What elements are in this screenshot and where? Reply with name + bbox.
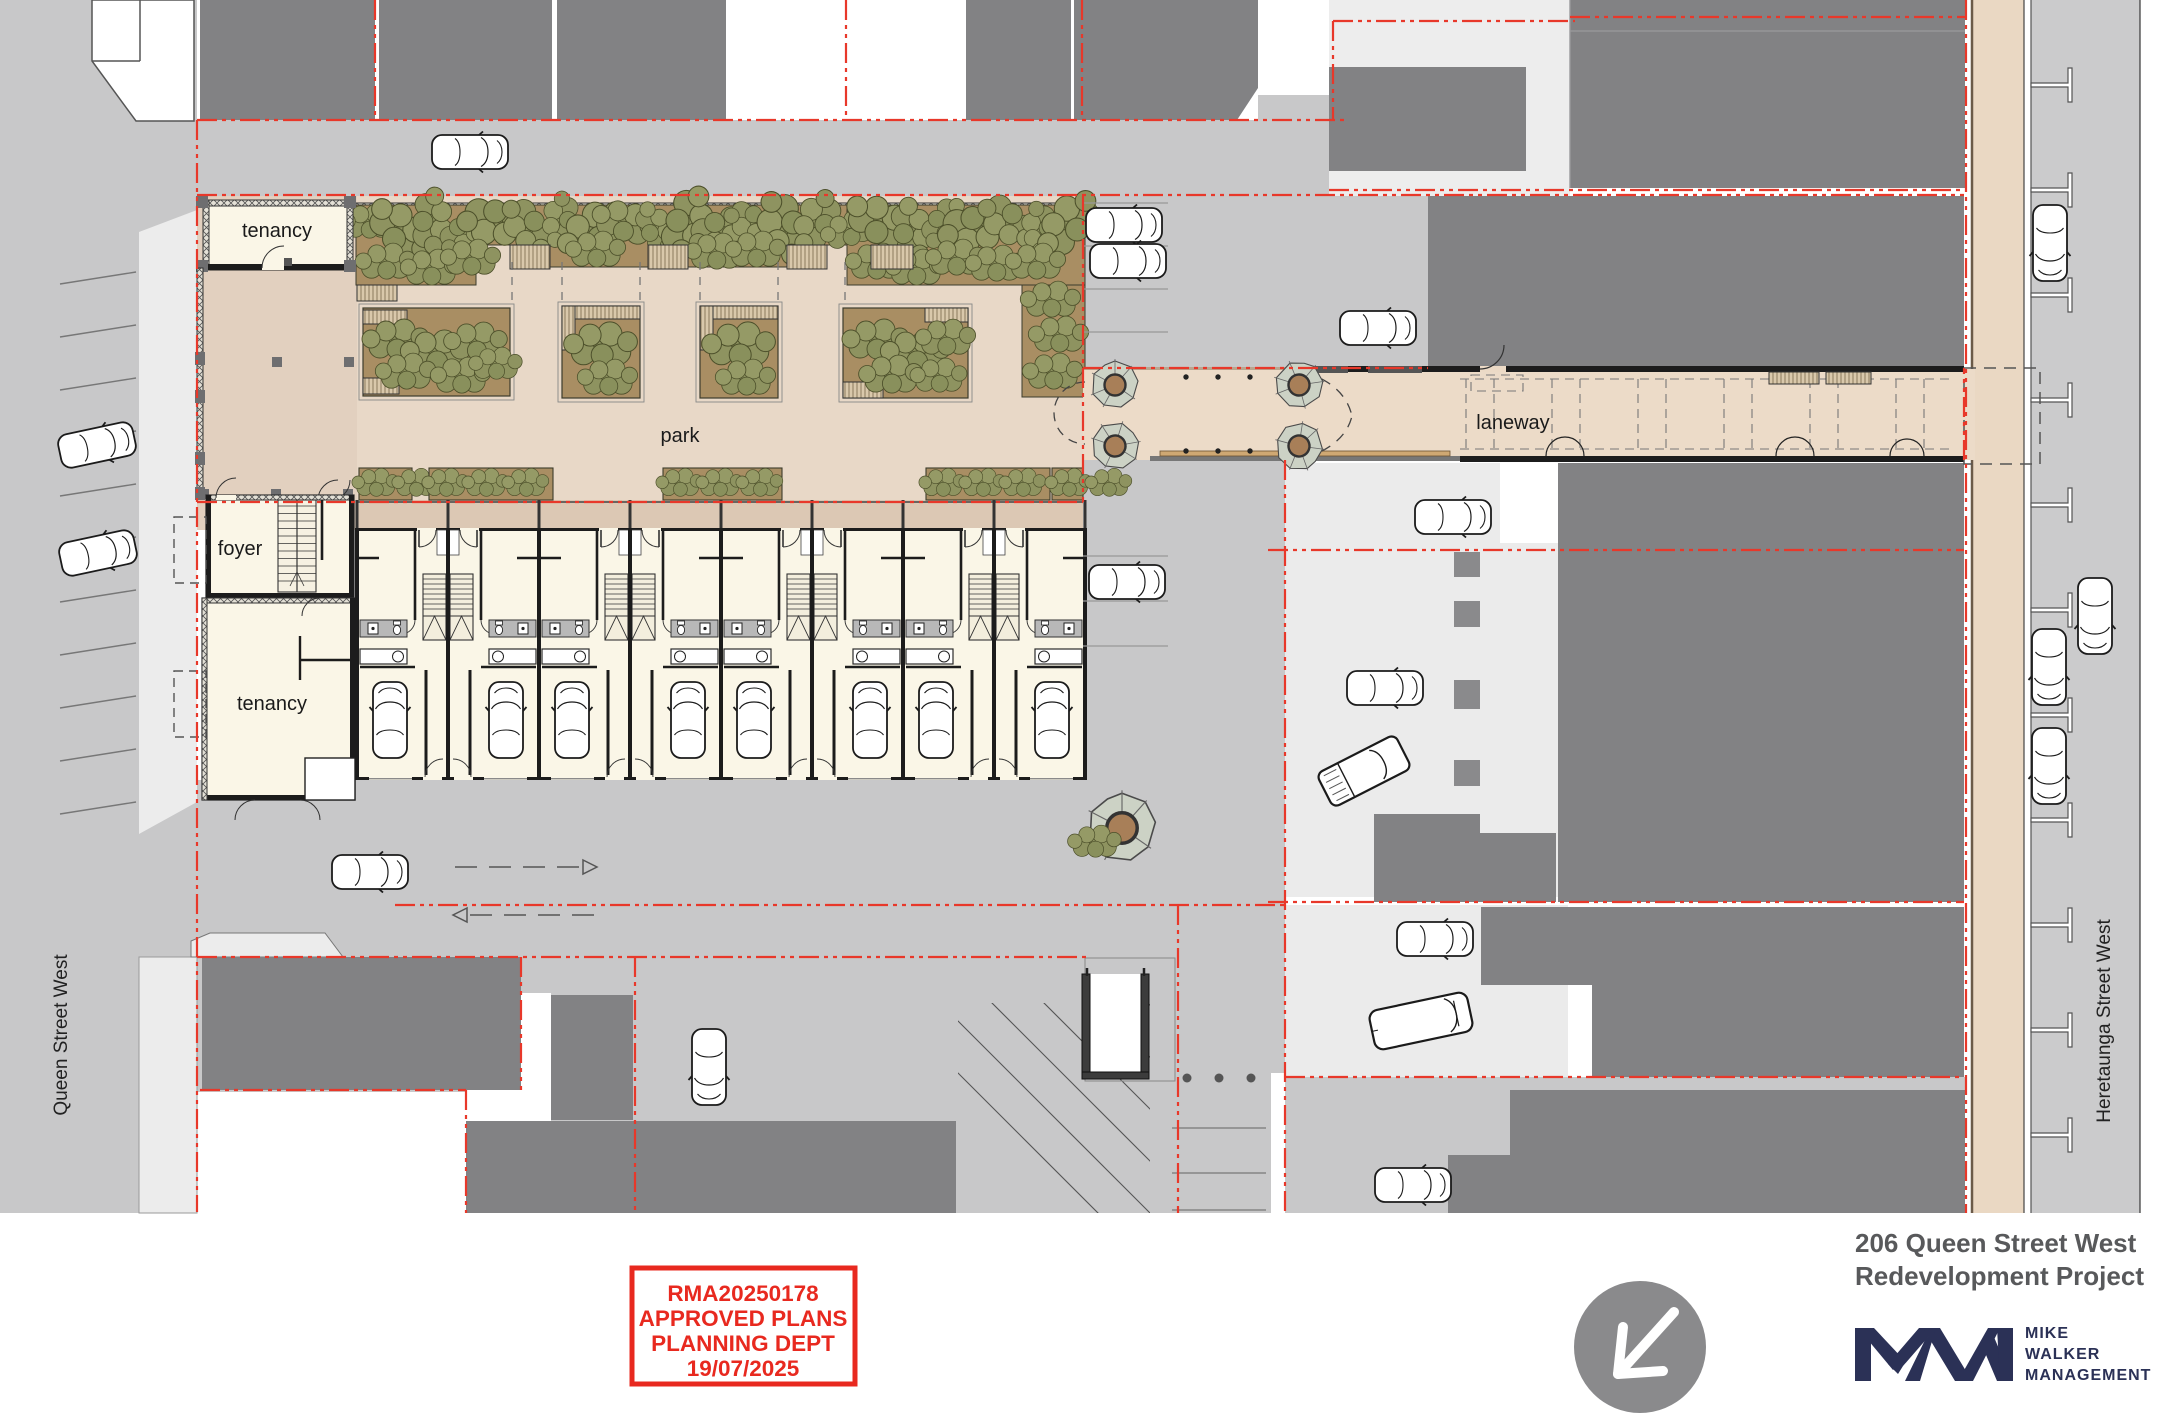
svg-text:MIKE: MIKE (2025, 1325, 2069, 1342)
svg-text:MANAGEMENT: MANAGEMENT (2025, 1367, 2151, 1384)
svg-text:19/07/2025: 19/07/2025 (687, 1356, 800, 1381)
svg-text:RMA20250178: RMA20250178 (667, 1281, 818, 1306)
svg-text:foyer: foyer (218, 538, 263, 560)
svg-text:PLANNING DEPT: PLANNING DEPT (651, 1331, 835, 1356)
svg-text:Queen Street West: Queen Street West (51, 954, 72, 1116)
svg-text:laneway: laneway (1476, 412, 1549, 434)
svg-text:Heretaunga Street West: Heretaunga Street West (2094, 919, 2115, 1123)
svg-text:APPROVED PLANS: APPROVED PLANS (639, 1306, 848, 1331)
svg-text:Redevelopment Project: Redevelopment Project (1855, 1261, 2144, 1291)
svg-text:206 Queen Street West: 206 Queen Street West (1855, 1228, 2137, 1258)
svg-text:park: park (661, 425, 701, 447)
svg-text:WALKER: WALKER (2025, 1346, 2100, 1363)
svg-text:tenancy: tenancy (242, 220, 312, 242)
svg-text:tenancy: tenancy (237, 693, 307, 715)
